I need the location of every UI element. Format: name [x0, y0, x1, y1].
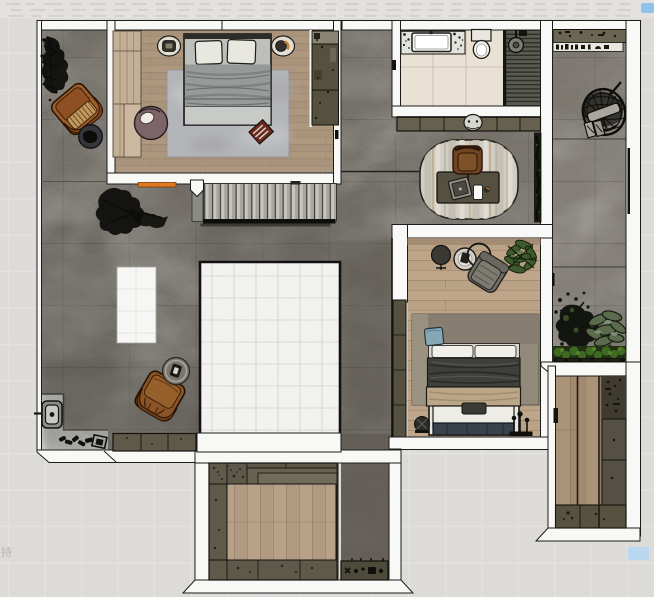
svg-text:持: 持: [1, 545, 12, 559]
